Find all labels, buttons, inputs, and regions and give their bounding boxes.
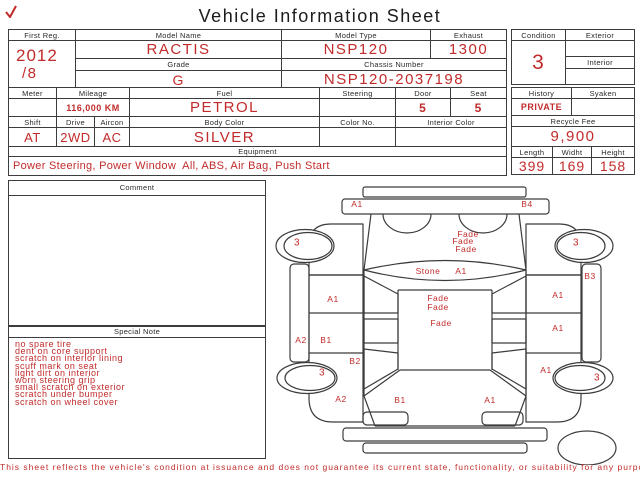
car-outline-drawing — [270, 182, 635, 465]
chassis-number-value: NSP120-2037198 — [282, 71, 507, 89]
wheel-rear-right — [553, 363, 613, 394]
model-name-value: RACTIS — [76, 41, 282, 59]
shift-value: AT — [9, 128, 57, 147]
damage-code-label: A1 — [484, 395, 495, 405]
model-type-label: Model Type — [282, 30, 431, 41]
exterior-label: Exterior — [566, 30, 635, 41]
damage-code-label: 3 — [594, 373, 600, 384]
car-cabin — [364, 270, 526, 396]
door-label: Door — [396, 88, 451, 99]
left-front-window — [364, 276, 398, 313]
door-value: 5 — [396, 99, 451, 117]
damage-code-label: 3 — [573, 238, 579, 249]
length-label: Length — [512, 147, 553, 158]
drive-value: 2WD — [57, 128, 95, 147]
right-front-window — [492, 276, 526, 313]
damage-code-label: Fade — [427, 302, 448, 312]
exhaust-label: Exhaust — [431, 30, 507, 41]
page-title: Vehicle Information Sheet — [0, 6, 640, 27]
windshield — [364, 261, 526, 281]
left-sill-strip — [290, 264, 309, 362]
aircon-value: AC — [95, 128, 130, 147]
damage-code-label: 3 — [294, 238, 300, 249]
recycle-fee-label: Recycle Fee — [512, 116, 635, 127]
exhaust-value: 1300 — [431, 41, 507, 59]
damage-code-label: A1 — [552, 290, 563, 300]
equipment-value: Power Steering, Power Window All, ABS, A… — [9, 157, 507, 176]
damage-code-label: B3 — [584, 271, 595, 281]
left-headlight — [383, 214, 431, 233]
meter-value — [9, 99, 57, 117]
body-color-label: Body Color — [130, 117, 320, 128]
condition-table: Condition Exterior 3 Interior — [511, 29, 635, 85]
mileage-value: 116,000 KM — [57, 99, 130, 117]
recycle-fee-value: 9,900 — [512, 127, 635, 147]
tailgate — [364, 396, 526, 426]
syaken-label: Syaken — [572, 88, 635, 99]
disclaimer-text: This sheet reflects the vehicle's condit… — [0, 462, 640, 472]
width-label: Widht — [553, 147, 592, 158]
car-front — [342, 187, 549, 281]
damage-code-label: Fade — [455, 244, 476, 254]
steering-value — [320, 99, 396, 117]
comment-content — [9, 196, 265, 199]
car-damage-diagram: A1B433FadeFadeFadeStoneA1B3A1A1FadeFadeF… — [270, 182, 635, 465]
interior-value — [566, 69, 635, 85]
special-note-content: no spare tiredent on core supportscratch… — [9, 338, 265, 406]
spare-tire — [558, 431, 616, 465]
equipment-label: Equipment — [9, 147, 507, 157]
red-check-mark — [4, 4, 18, 18]
left-rear-window — [364, 319, 398, 343]
damage-code-label: Fade — [430, 318, 451, 328]
damage-code-label: 3 — [319, 368, 325, 379]
width-value: 169 — [553, 158, 592, 175]
condition-label: Condition — [512, 30, 566, 41]
body-color-value: SILVER — [130, 128, 320, 147]
right-door-panel — [526, 275, 581, 353]
history-label: History — [512, 88, 572, 99]
special-note-box-title: Special Note — [9, 327, 265, 338]
first-reg-label: First Reg. — [9, 30, 76, 41]
grade-label: Grade — [76, 59, 282, 71]
damage-code-label: A1 — [552, 323, 563, 333]
history-value: PRIVATE — [512, 99, 572, 116]
special-note-line: scratch on wheel cover — [15, 399, 265, 406]
hood-sides — [364, 214, 526, 270]
color-no-value — [320, 128, 396, 147]
damage-code-label: A1 — [327, 294, 338, 304]
aircon-label: Aircon — [95, 117, 130, 128]
seat-label: Seat — [451, 88, 507, 99]
right-rear-window — [492, 319, 526, 343]
length-value: 399 — [512, 158, 553, 175]
wheel-front-right — [555, 230, 613, 263]
damage-code-label: A1 — [540, 365, 551, 375]
chassis-number-label: Chassis Number — [282, 59, 507, 71]
damage-code-label: A2 — [295, 335, 306, 345]
color-no-label: Color No. — [320, 117, 396, 128]
height-value: 158 — [592, 158, 635, 175]
interior-label: Interior — [566, 57, 635, 69]
wheel-front-left — [276, 230, 334, 263]
damage-code-label: B1 — [320, 335, 331, 345]
wheel-rear-left — [277, 363, 337, 394]
comment-box-title: Comment — [9, 181, 265, 196]
mileage-label: Mileage — [57, 88, 130, 99]
rear-bumper-lower — [363, 443, 527, 453]
front-bumper-top — [363, 187, 526, 197]
damage-code-label: B1 — [394, 395, 405, 405]
condition-value: 3 — [512, 41, 566, 85]
interior-color-label: Interior Color — [396, 117, 507, 128]
fuel-value: PETROL — [130, 99, 320, 117]
interior-color-value — [396, 128, 507, 147]
damage-code-label: A2 — [335, 394, 346, 404]
seat-value: 5 — [451, 99, 507, 117]
damage-code-label: Stone — [416, 266, 441, 276]
history-fee-table: History Syaken PRIVATE Recycle Fee 9,900… — [511, 87, 635, 175]
left-tail-lamp — [363, 412, 408, 425]
damage-code-label: A1 — [351, 199, 362, 209]
first-reg-value: 2012 /8 — [9, 41, 76, 89]
rear-window — [364, 370, 526, 396]
fuel-label: Fuel — [130, 88, 320, 99]
wheels — [276, 230, 616, 466]
rear-bumper — [343, 428, 547, 441]
syaken-value — [572, 99, 635, 116]
front-bumper — [342, 199, 549, 214]
model-name-label: Model Name — [76, 30, 282, 41]
shift-label: Shift — [9, 117, 57, 128]
right-tail-lamp — [482, 412, 523, 425]
left-door-panel — [309, 275, 363, 353]
exterior-value — [566, 41, 635, 57]
model-type-value: NSP120 — [282, 41, 431, 59]
height-label: Height — [592, 147, 635, 158]
drive-label: Drive — [57, 117, 95, 128]
comment-box: Comment — [8, 180, 266, 326]
car-rear — [343, 396, 547, 453]
spec-table: Meter Mileage Fuel Steering Door Seat 11… — [8, 87, 507, 176]
identity-table: First Reg. Model Name Model Type Exhaust… — [8, 29, 507, 89]
damage-code-label: B2 — [349, 356, 360, 366]
steering-label: Steering — [320, 88, 396, 99]
damage-code-label: A1 — [455, 266, 466, 276]
vehicle-information-sheet: Vehicle Information Sheet First Reg. Mod… — [0, 0, 640, 480]
special-note-box: Special Note no spare tiredent on core s… — [8, 326, 266, 459]
damage-code-label: B4 — [521, 199, 532, 209]
grade-value: G — [76, 71, 282, 89]
meter-label: Meter — [9, 88, 57, 99]
